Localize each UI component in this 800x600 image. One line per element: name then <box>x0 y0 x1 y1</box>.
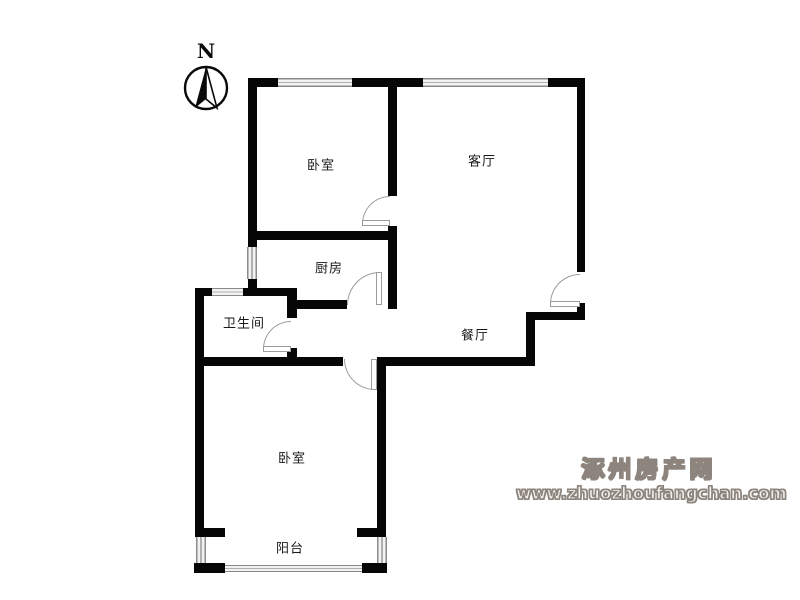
wall-divider-upper <box>388 78 397 196</box>
door-leaf-bedroom-bottom <box>371 359 377 390</box>
compass-icon <box>180 62 232 112</box>
wall-living-right <box>577 78 585 272</box>
north-arrow: N <box>180 40 232 116</box>
window-balcony-left <box>196 537 206 563</box>
door-leaf-bathroom <box>263 346 291 352</box>
window-kitchen-left <box>247 247 257 279</box>
watermark-site-url: www.zhuozhoufangchan.com <box>516 484 782 504</box>
room-label-bathroom: 卫生间 <box>223 313 265 332</box>
window-balcony-right <box>377 537 387 563</box>
wall-hall-bottom-right <box>377 357 535 366</box>
room-label-living-room: 客厅 <box>468 151 496 170</box>
door-leaf-bedroom-top <box>362 220 390 226</box>
door-arc-bathroom <box>263 321 291 349</box>
wall-balcony-corner-right <box>362 563 387 573</box>
window-balcony-front <box>225 565 362 572</box>
wall-bathroom-right-upper <box>287 288 297 318</box>
window-bedroom-top <box>278 78 352 87</box>
north-label: N <box>180 40 232 62</box>
wall-left-upper <box>248 78 257 247</box>
room-label-bedroom-bottom: 卧室 <box>278 448 306 467</box>
watermark-site-name: 涿州房产网 <box>516 458 782 483</box>
wall-hall-bottom-left <box>195 357 343 366</box>
wall-bedroom-bottom-right <box>377 357 386 537</box>
watermark: 涿州房产网 www.zhuozhoufangchan.com <box>516 458 782 504</box>
window-living-room <box>423 78 548 87</box>
room-label-bedroom-top: 卧室 <box>307 155 335 174</box>
window-bathroom <box>212 288 243 296</box>
wall-bedroom-bottom-bottom-left <box>195 528 225 537</box>
wall-bedroom-bottom-bottom-right <box>357 528 386 537</box>
door-leaf-kitchen <box>376 272 382 305</box>
room-label-balcony: 阳台 <box>276 538 304 557</box>
wall-balcony-corner-left <box>194 563 225 573</box>
wall-left-lower <box>195 288 204 537</box>
room-label-kitchen: 厨房 <box>315 258 343 277</box>
wall-bedroom-top-bottom <box>248 231 397 240</box>
wall-dining-step-horizontal <box>526 312 585 320</box>
wall-dining-step-vertical <box>526 312 535 366</box>
door-arc-living-room <box>550 274 580 304</box>
door-leaf-living-room <box>550 301 580 307</box>
floor-plan: N <box>0 0 800 600</box>
room-label-dining-room: 餐厅 <box>461 325 489 344</box>
